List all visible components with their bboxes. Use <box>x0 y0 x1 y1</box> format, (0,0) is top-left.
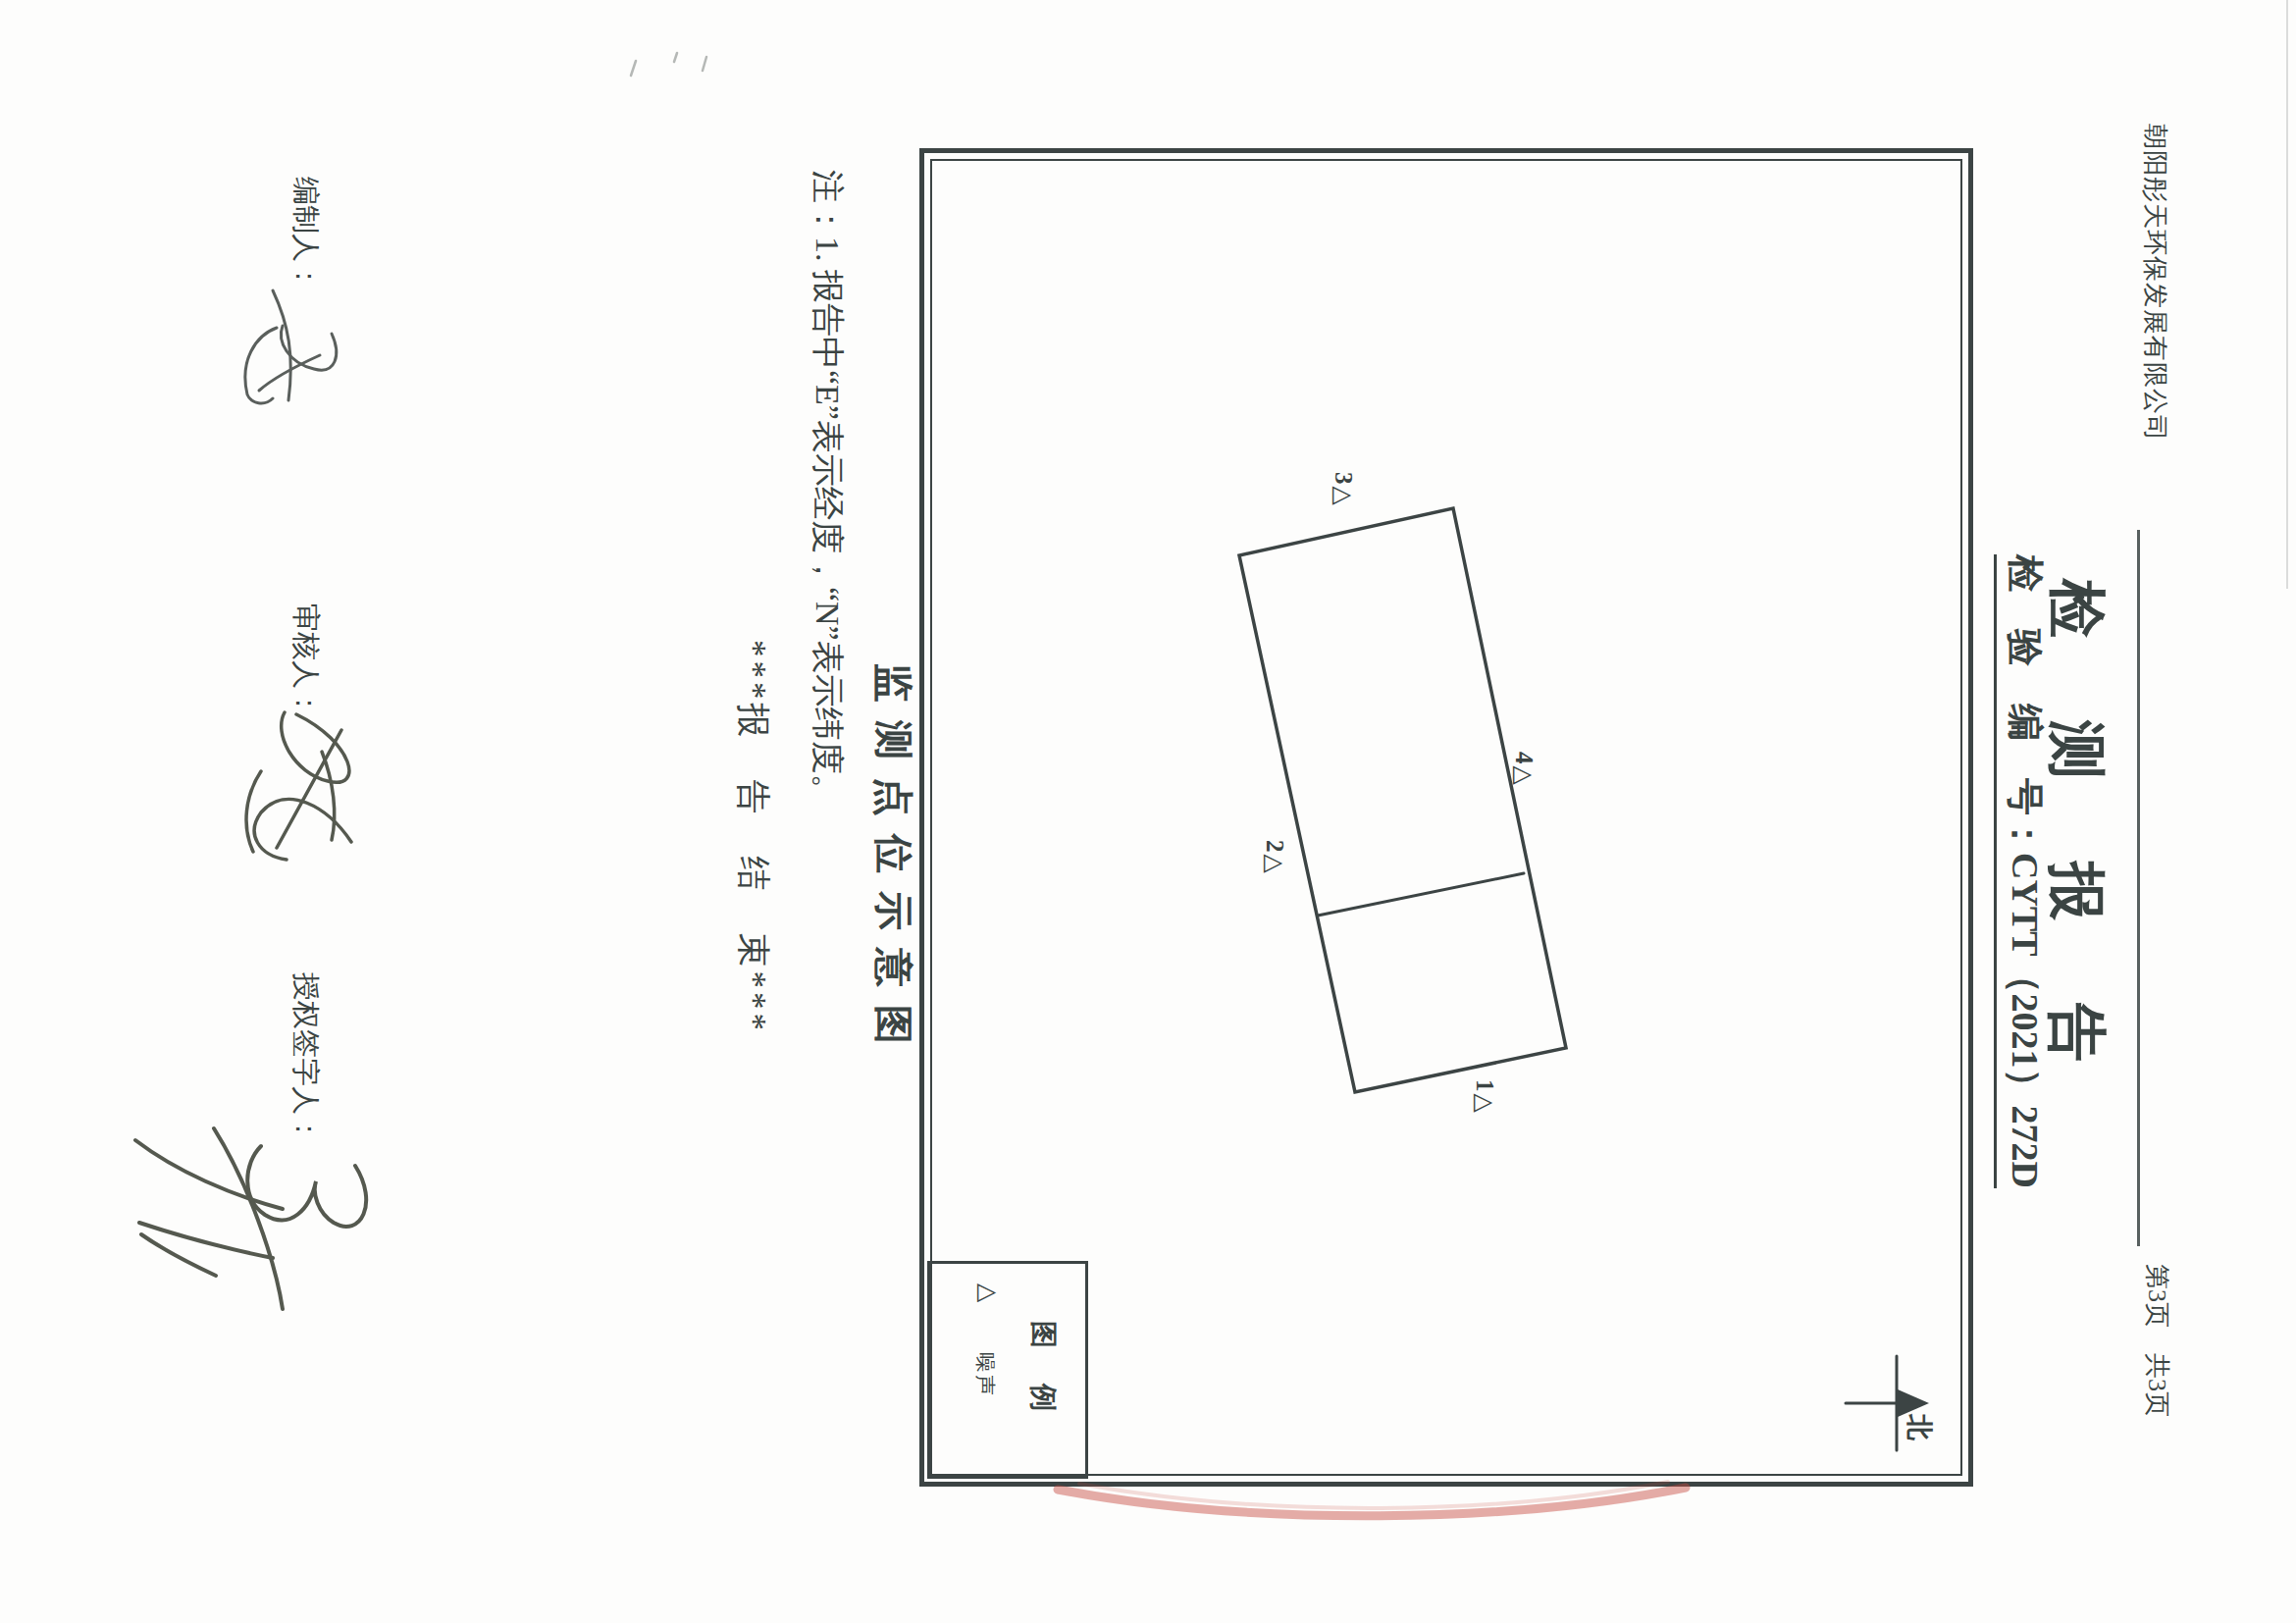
reviewer-label: 审核人： <box>286 603 325 717</box>
preparer-label: 编制人： <box>286 177 325 290</box>
legend-box: 图 例 △ 噪声 <box>927 1261 1088 1479</box>
monitor-point-2-label: 2△ <box>1261 840 1289 875</box>
company-name: 朝阳彤天环保发展有限公司 <box>2138 124 2172 442</box>
scanned-report-landscape: { "header": { "company": "朝阳彤天环保发展有限公司",… <box>0 0 2296 1623</box>
signature-authorized <box>135 1128 366 1309</box>
monitor-point-1-label: 1△ <box>1471 1079 1499 1115</box>
scan-artifact-line <box>2286 0 2288 589</box>
page-indicator: 第3页 共3页 <box>2140 1264 2174 1417</box>
end-of-report-marker: ***报 告 结 束*** <box>730 640 776 1034</box>
map-caption: 监测点位示意图 <box>866 663 920 1062</box>
signature-reviewer <box>246 712 351 860</box>
authorized-signatory-label: 授权签字人： <box>286 972 325 1143</box>
report-number: 检 验 编 号：CYTT（2021）272D <box>1994 554 2050 1188</box>
red-stamp-arc <box>1058 1488 1686 1516</box>
legend-title: 图 例 <box>1024 1321 1062 1415</box>
north-label: 北 <box>1902 1414 1937 1440</box>
monitor-point-3-label: 3△ <box>1330 472 1358 507</box>
monitor-point-4-label: 4△ <box>1510 752 1539 787</box>
header-rule <box>2137 530 2140 1246</box>
noise-triangle-icon: △ <box>974 1283 1003 1302</box>
note-line: 注：1. 报告中“E”表示经度，“N”表示纬度。 <box>805 170 850 808</box>
signature-preparer <box>245 290 337 403</box>
legend-noise-label: 噪声 <box>971 1352 999 1397</box>
report-page: 朝阳彤天环保发展有限公司 第3页 共3页 检测报告 检 验 编 号：CYTT（2… <box>0 0 2296 1623</box>
scan-specks <box>631 53 706 76</box>
